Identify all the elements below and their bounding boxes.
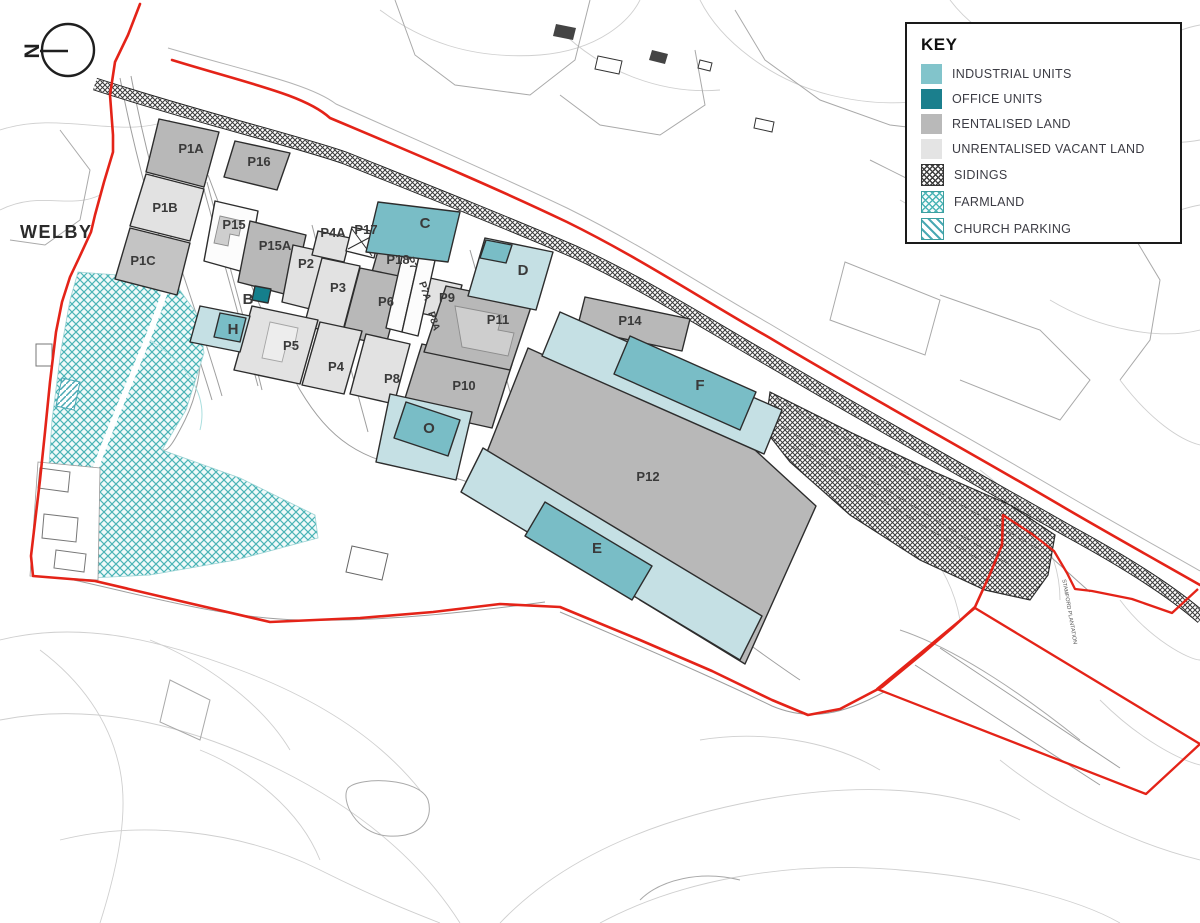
sidings-swatch [921, 164, 944, 186]
key-item-label: INDUSTRIAL UNITS [952, 67, 1072, 81]
north-arrow: N [20, 24, 95, 76]
label-p11: P11 [487, 312, 509, 327]
label-p4: P4 [328, 359, 345, 374]
label-o: O [423, 420, 435, 437]
farmland-swatch [921, 191, 944, 213]
unrentalised-vacant-land-swatch [921, 139, 942, 159]
plot-p8 [350, 334, 410, 404]
label-c: C [420, 215, 431, 232]
label-b: B [243, 291, 254, 308]
label-p8: P8 [384, 371, 400, 386]
key-item-label: CHURCH PARKING [954, 222, 1071, 236]
key-panel: KEY INDUSTRIAL UNITS OFFICE UNITS RENTAL… [905, 22, 1182, 244]
label-p16: P16 [247, 154, 270, 169]
label-d: D [518, 262, 529, 279]
key-item: CHURCH PARKING [921, 218, 1166, 240]
label-h: H [228, 321, 239, 338]
key-item: RENTALISED LAND [921, 114, 1166, 134]
key-item-label: UNRENTALISED VACANT LAND [952, 142, 1145, 156]
key-title: KEY [921, 35, 1166, 55]
key-item: FARMLAND [921, 191, 1166, 213]
key-item: INDUSTRIAL UNITS [921, 64, 1166, 84]
rentalised-land-swatch [921, 114, 942, 134]
industrial-units-swatch [921, 64, 942, 84]
label-e: E [592, 540, 602, 557]
label-p3: P3 [330, 280, 346, 295]
label-p2: P2 [298, 256, 314, 271]
church-building [36, 344, 52, 366]
church-parking-swatch [921, 218, 944, 240]
key-item-label: OFFICE UNITS [952, 92, 1042, 106]
label-p12: P12 [636, 469, 659, 484]
building-d [480, 240, 512, 263]
label-p4a: P4A [320, 225, 346, 240]
label-p15: P15 [222, 217, 245, 232]
building-b [252, 286, 271, 303]
label-p1a: P1A [178, 141, 204, 156]
key-item: SIDINGS [921, 164, 1166, 186]
key-item: UNRENTALISED VACANT LAND [921, 139, 1166, 159]
label-p17: P17 [354, 222, 377, 237]
label-p15a: P15A [259, 238, 292, 253]
key-item: OFFICE UNITS [921, 89, 1166, 109]
north-arrow-n: N [20, 43, 43, 58]
label-p1b: P1B [152, 200, 177, 215]
label-f: F [695, 377, 704, 394]
site-plan-map: P1A P1B P1C P16 P15 P15A P2 P4A P17 P18 … [0, 0, 1200, 923]
key-item-label: RENTALISED LAND [952, 117, 1071, 131]
label-p10: P10 [452, 378, 475, 393]
label-p1c: P1C [130, 253, 156, 268]
welby-label: WELBY [20, 222, 93, 242]
key-item-label: SIDINGS [954, 168, 1008, 182]
label-p14: P14 [618, 313, 642, 328]
label-p6: P6 [378, 294, 394, 309]
label-p9: P9 [439, 290, 455, 305]
label-p5: P5 [283, 338, 299, 353]
building-c [366, 202, 460, 262]
key-item-label: FARMLAND [954, 195, 1024, 209]
office-units-swatch [921, 89, 942, 109]
